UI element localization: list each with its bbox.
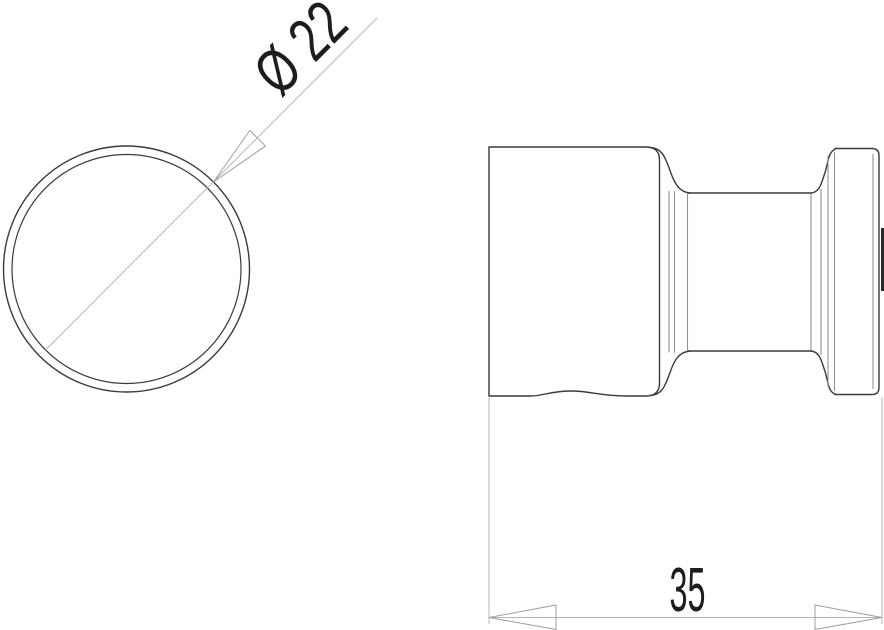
face-neck-fillet-top — [650, 148, 690, 194]
width-dimension-label: 35 — [670, 556, 706, 625]
knob-face-outline — [489, 147, 660, 396]
neck-flange-fillet-top — [811, 149, 836, 194]
diameter-dimension-label: Ø 22 — [241, 0, 361, 108]
face-neck-fillet-bottom — [650, 351, 690, 396]
drawing-canvas: Ø 22 — [0, 0, 884, 630]
neck-flange-fillet-bottom — [811, 351, 836, 395]
side-view — [489, 147, 883, 396]
width-dimension: 35 — [489, 397, 882, 630]
front-view: Ø 22 — [4, 0, 378, 392]
flange-outline — [835, 149, 879, 395]
technical-drawing: Ø 22 — [0, 0, 884, 630]
